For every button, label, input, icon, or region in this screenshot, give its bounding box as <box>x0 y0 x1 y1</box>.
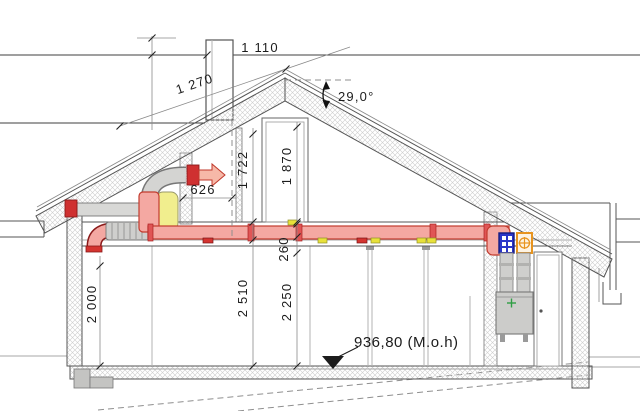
damper-yellow <box>288 220 297 225</box>
door-handle <box>539 309 542 312</box>
plinth-step <box>74 369 90 388</box>
left-exterior-wall <box>67 210 82 366</box>
dim-1110: 1 110 <box>241 40 279 55</box>
red-elbow-flange <box>86 246 102 252</box>
utility-door <box>534 252 562 366</box>
dim-626: 626 <box>190 182 215 197</box>
unit-duct-right <box>517 253 530 292</box>
duct-flange <box>516 263 531 266</box>
main-supply-duct <box>148 220 510 255</box>
dim-2000: 2 000 <box>84 285 99 324</box>
heat-recovery-unit <box>496 292 533 334</box>
extract-fan-icon <box>517 233 532 253</box>
damper-red <box>203 238 213 243</box>
unit-leg <box>523 334 528 342</box>
left-eave <box>0 221 44 237</box>
damper-yellow <box>371 238 380 243</box>
dim-2510: 2 510 <box>235 279 250 318</box>
duct-flange <box>499 277 514 280</box>
unit-duct-left <box>500 253 513 292</box>
plinth-step-lower <box>90 377 113 388</box>
intake-grille-red <box>65 200 77 217</box>
duct-flange <box>499 263 514 266</box>
damper-yellow <box>427 238 436 243</box>
damper-yellow <box>318 238 327 243</box>
stud-cap <box>422 246 430 250</box>
ventilation-unit-stack <box>496 233 533 342</box>
duct-end-flange <box>148 224 153 241</box>
level-label: 936,80 (M.o.h) <box>354 334 459 351</box>
dim-1870: 1 870 <box>279 147 294 186</box>
angle-arrow-up <box>323 81 331 90</box>
level-marker: 936,80 (M.o.h) <box>322 334 459 369</box>
dim-2250: 2 250 <box>279 283 294 322</box>
section-drawing: 1 110 1 270 29,0° 626 1 722 1 870 <box>0 0 640 411</box>
roof-angle-label: 29,0° <box>338 89 375 104</box>
damper-red <box>357 238 367 243</box>
damper-yellow <box>417 238 426 243</box>
stud-cap <box>366 246 374 250</box>
dim-1722: 1 722 <box>235 151 250 190</box>
floor-slab <box>70 366 592 388</box>
roof-right-slope <box>285 78 612 277</box>
right-exterior-wall <box>572 258 589 388</box>
supply-terminal-icon <box>499 233 514 253</box>
unit-leg <box>500 334 505 342</box>
dim-260: 260 <box>276 236 291 261</box>
duct-flange <box>516 277 531 280</box>
